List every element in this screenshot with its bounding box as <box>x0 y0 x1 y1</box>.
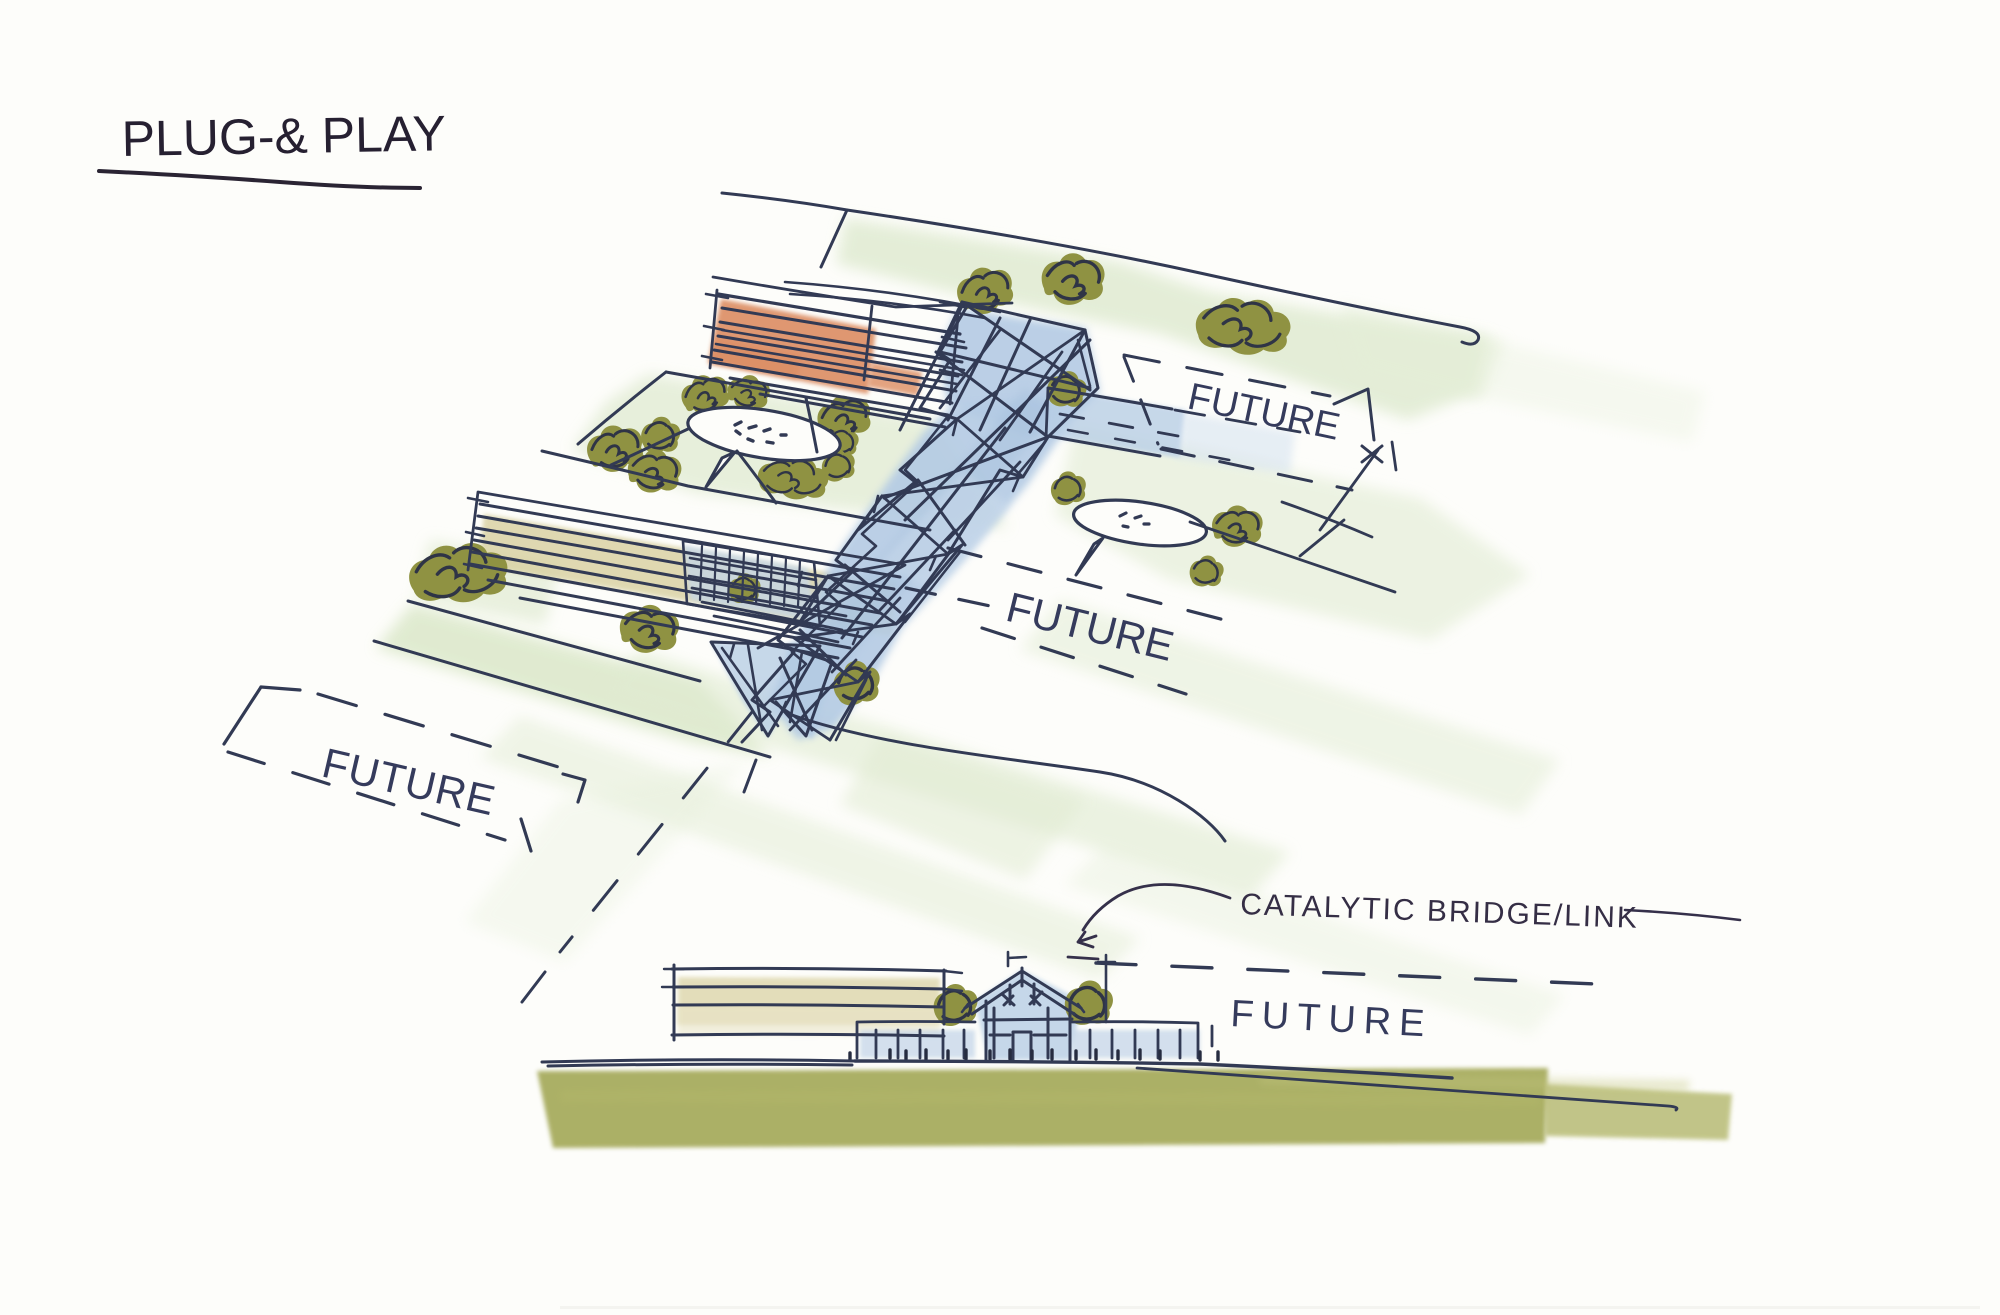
svg-text:PLUG-& PLAY: PLUG-& PLAY <box>121 105 446 167</box>
